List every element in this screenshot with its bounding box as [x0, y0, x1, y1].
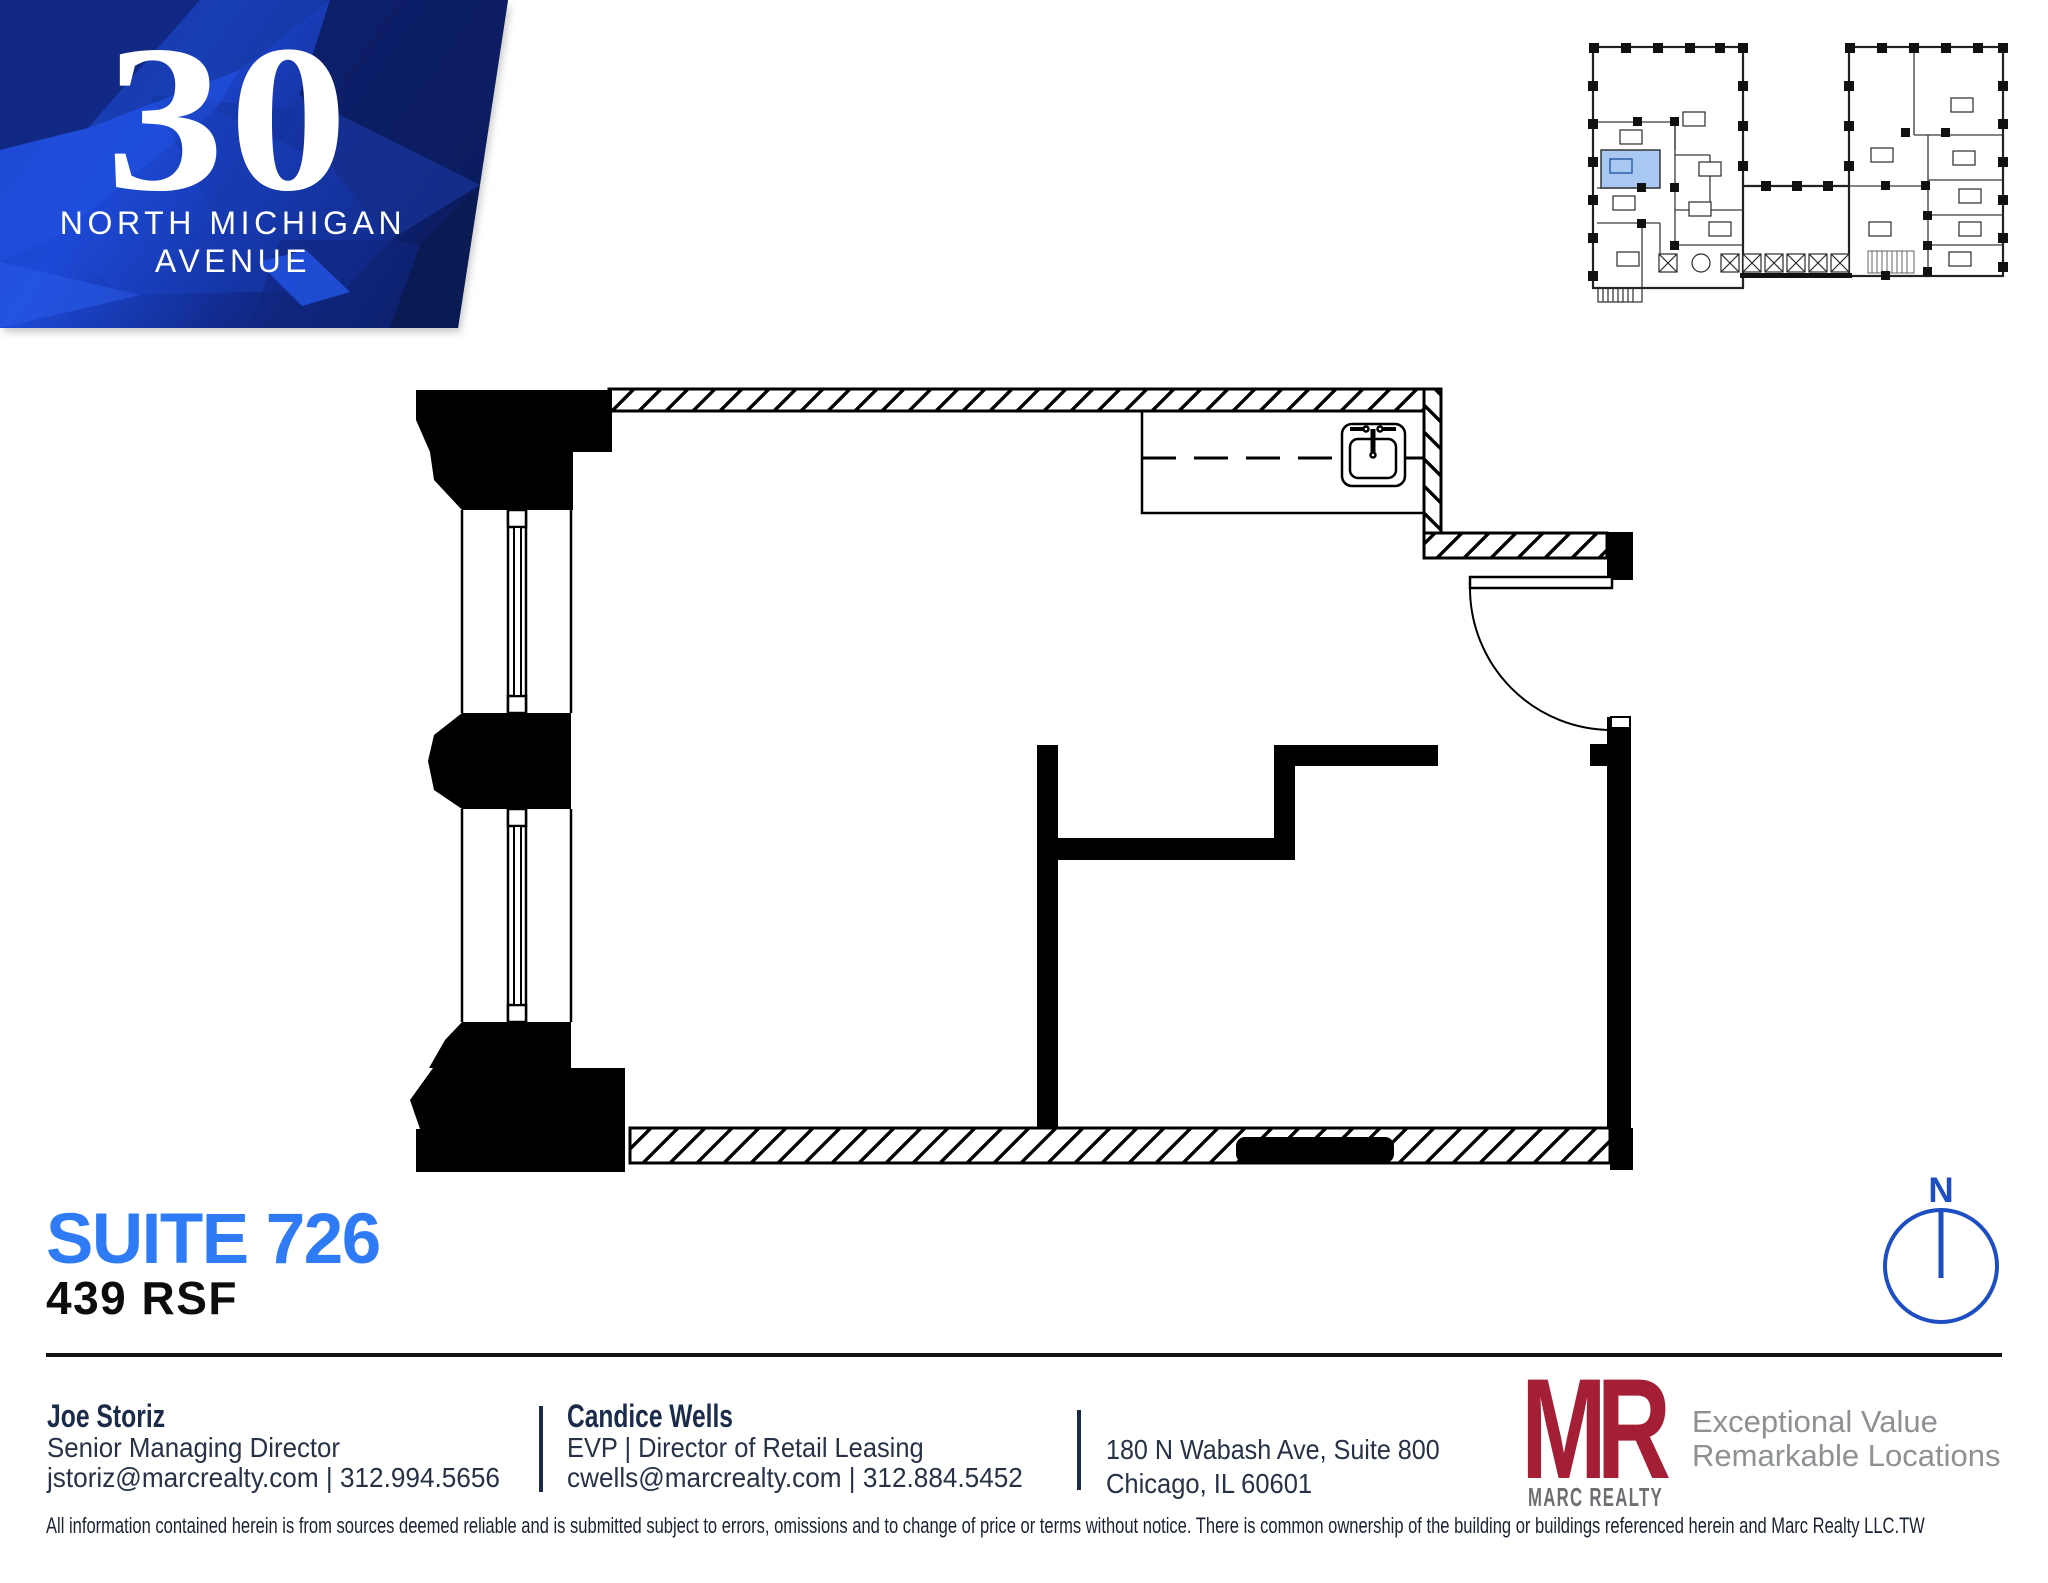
svg-text:N: N: [1928, 1171, 1953, 1210]
svg-text:NORTH MICHIGAN: NORTH MICHIGAN: [60, 205, 406, 241]
svg-text:30: 30: [106, 2, 352, 234]
svg-text:AVENUE: AVENUE: [155, 243, 311, 279]
